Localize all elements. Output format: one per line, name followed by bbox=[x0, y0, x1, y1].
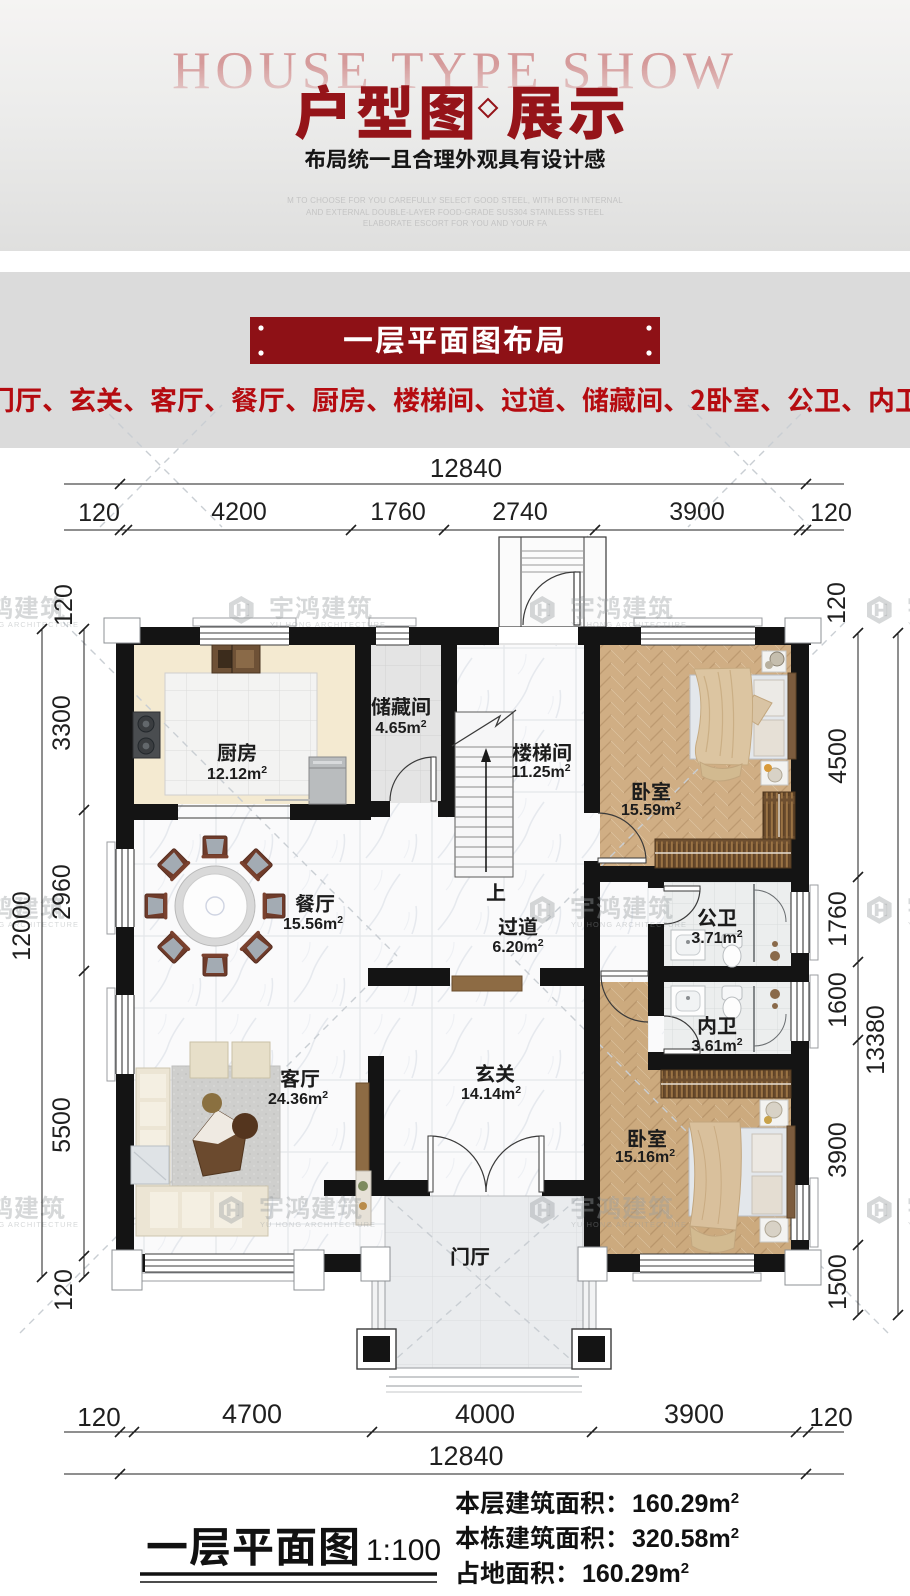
svg-text:15.16m2: 15.16m2 bbox=[615, 1147, 675, 1166]
svg-text:15.56m2: 15.56m2 bbox=[283, 914, 343, 933]
svg-text:YU HONG ARCHITECTURE: YU HONG ARCHITECTURE bbox=[571, 920, 687, 929]
svg-text:5500: 5500 bbox=[48, 1097, 76, 1153]
svg-text:12000: 12000 bbox=[8, 891, 36, 961]
svg-text:120: 120 bbox=[809, 1402, 852, 1432]
svg-text:13380: 13380 bbox=[862, 1005, 890, 1075]
svg-text:6.20m2: 6.20m2 bbox=[492, 937, 543, 956]
svg-text:3.71m2: 3.71m2 bbox=[691, 928, 742, 947]
svg-text:YU HONG ARCHITECTURE: YU HONG ARCHITECTURE bbox=[571, 620, 687, 629]
svg-text:1760: 1760 bbox=[824, 891, 852, 947]
svg-text:320.58m2: 320.58m2 bbox=[632, 1525, 739, 1553]
svg-text:4500: 4500 bbox=[824, 728, 852, 784]
svg-text:1760: 1760 bbox=[370, 498, 426, 526]
svg-text:15.59m2: 15.59m2 bbox=[621, 800, 681, 819]
svg-text:11.25m2: 11.25m2 bbox=[511, 762, 570, 781]
svg-text:24.36m2: 24.36m2 bbox=[268, 1089, 328, 1108]
svg-text:12840: 12840 bbox=[428, 1441, 503, 1471]
svg-text:1500: 1500 bbox=[824, 1254, 852, 1310]
svg-text:4200: 4200 bbox=[211, 498, 267, 526]
svg-text:4700: 4700 bbox=[222, 1399, 282, 1429]
svg-text:YU HONG ARCHITECTURE: YU HONG ARCHITECTURE bbox=[260, 1220, 376, 1229]
svg-text:3.61m2: 3.61m2 bbox=[691, 1036, 742, 1055]
svg-text:160.29m2: 160.29m2 bbox=[632, 1490, 739, 1518]
svg-text:1:100: 1:100 bbox=[366, 1534, 441, 1567]
svg-text:4000: 4000 bbox=[455, 1399, 515, 1429]
svg-text:3900: 3900 bbox=[669, 498, 725, 526]
svg-text:4.65m2: 4.65m2 bbox=[375, 718, 426, 737]
svg-text:14.14m2: 14.14m2 bbox=[461, 1084, 521, 1103]
svg-text:1600: 1600 bbox=[824, 972, 852, 1028]
svg-text:YU HONG ARCHITECTURE: YU HONG ARCHITECTURE bbox=[0, 1220, 79, 1229]
svg-text:120: 120 bbox=[810, 499, 852, 527]
svg-text:3300: 3300 bbox=[48, 695, 76, 751]
svg-text:120: 120 bbox=[50, 584, 78, 626]
svg-text:120: 120 bbox=[78, 499, 120, 527]
svg-text:120: 120 bbox=[50, 1269, 78, 1311]
svg-text:120: 120 bbox=[77, 1402, 120, 1432]
svg-text:3900: 3900 bbox=[664, 1399, 724, 1429]
svg-text:12.12m2: 12.12m2 bbox=[207, 764, 267, 783]
svg-text:2740: 2740 bbox=[492, 498, 548, 526]
svg-text:YU HONG ARCHITECTURE: YU HONG ARCHITECTURE bbox=[270, 620, 386, 629]
svg-text:160.29m2: 160.29m2 bbox=[582, 1560, 689, 1588]
svg-text:12840: 12840 bbox=[430, 453, 502, 483]
svg-text:2960: 2960 bbox=[48, 864, 76, 920]
svg-text:YU HONG ARCHITECTURE: YU HONG ARCHITECTURE bbox=[571, 1220, 687, 1229]
svg-text:3900: 3900 bbox=[824, 1122, 852, 1178]
svg-text:120: 120 bbox=[823, 582, 851, 624]
